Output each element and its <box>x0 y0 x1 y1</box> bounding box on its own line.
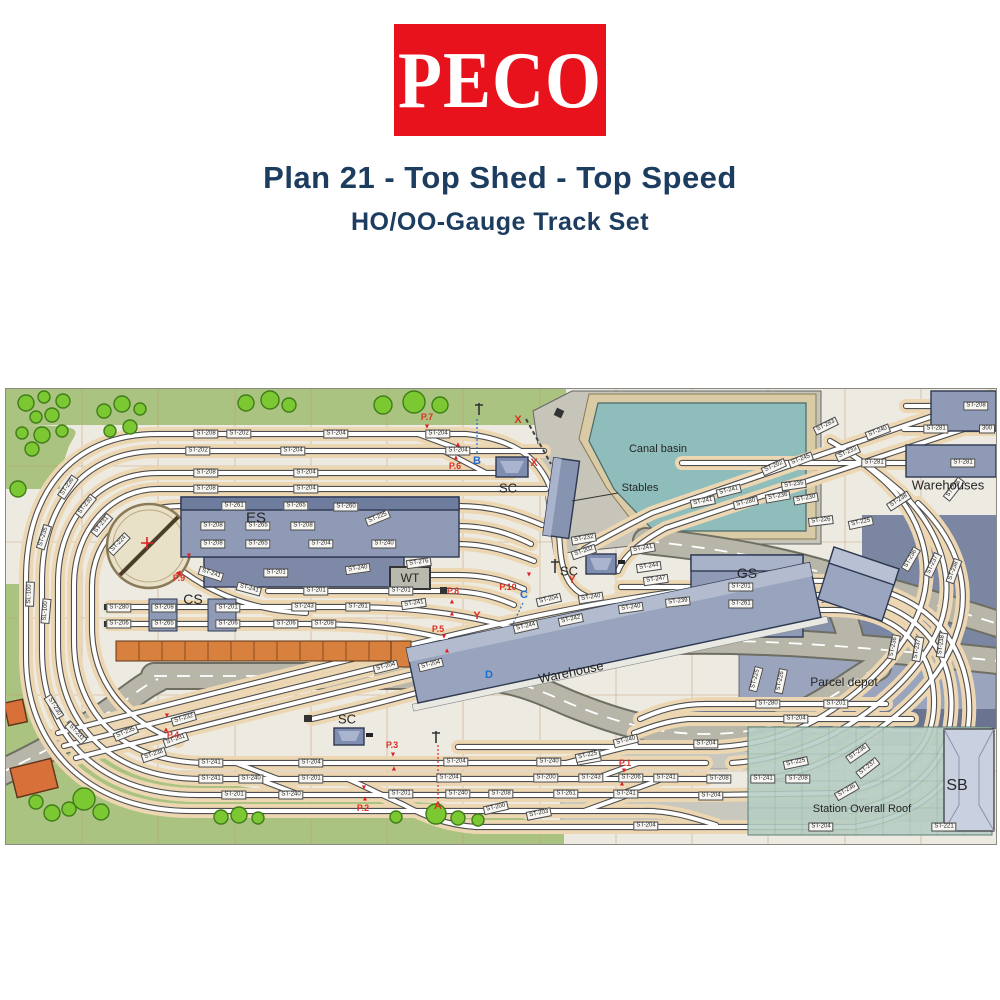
signal-cabin-top <box>496 457 528 477</box>
peco-logo-text: PECO <box>398 34 602 127</box>
page-title: Plan 21 - Top Shed - Top Speed <box>0 160 1000 196</box>
signal-box-sb <box>944 729 994 831</box>
track-plan: ST-208ST-202ST-204ST-204ST-202ST-204ST-2… <box>5 388 997 845</box>
peco-logo: PECO <box>394 24 606 136</box>
water-tower <box>390 567 430 589</box>
page: PECO Plan 21 - Top Shed - Top Speed HO/O… <box>0 0 1000 1000</box>
page-subtitle: HO/OO-Gauge Track Set <box>0 208 1000 237</box>
track-plan-drawing <box>6 389 996 844</box>
